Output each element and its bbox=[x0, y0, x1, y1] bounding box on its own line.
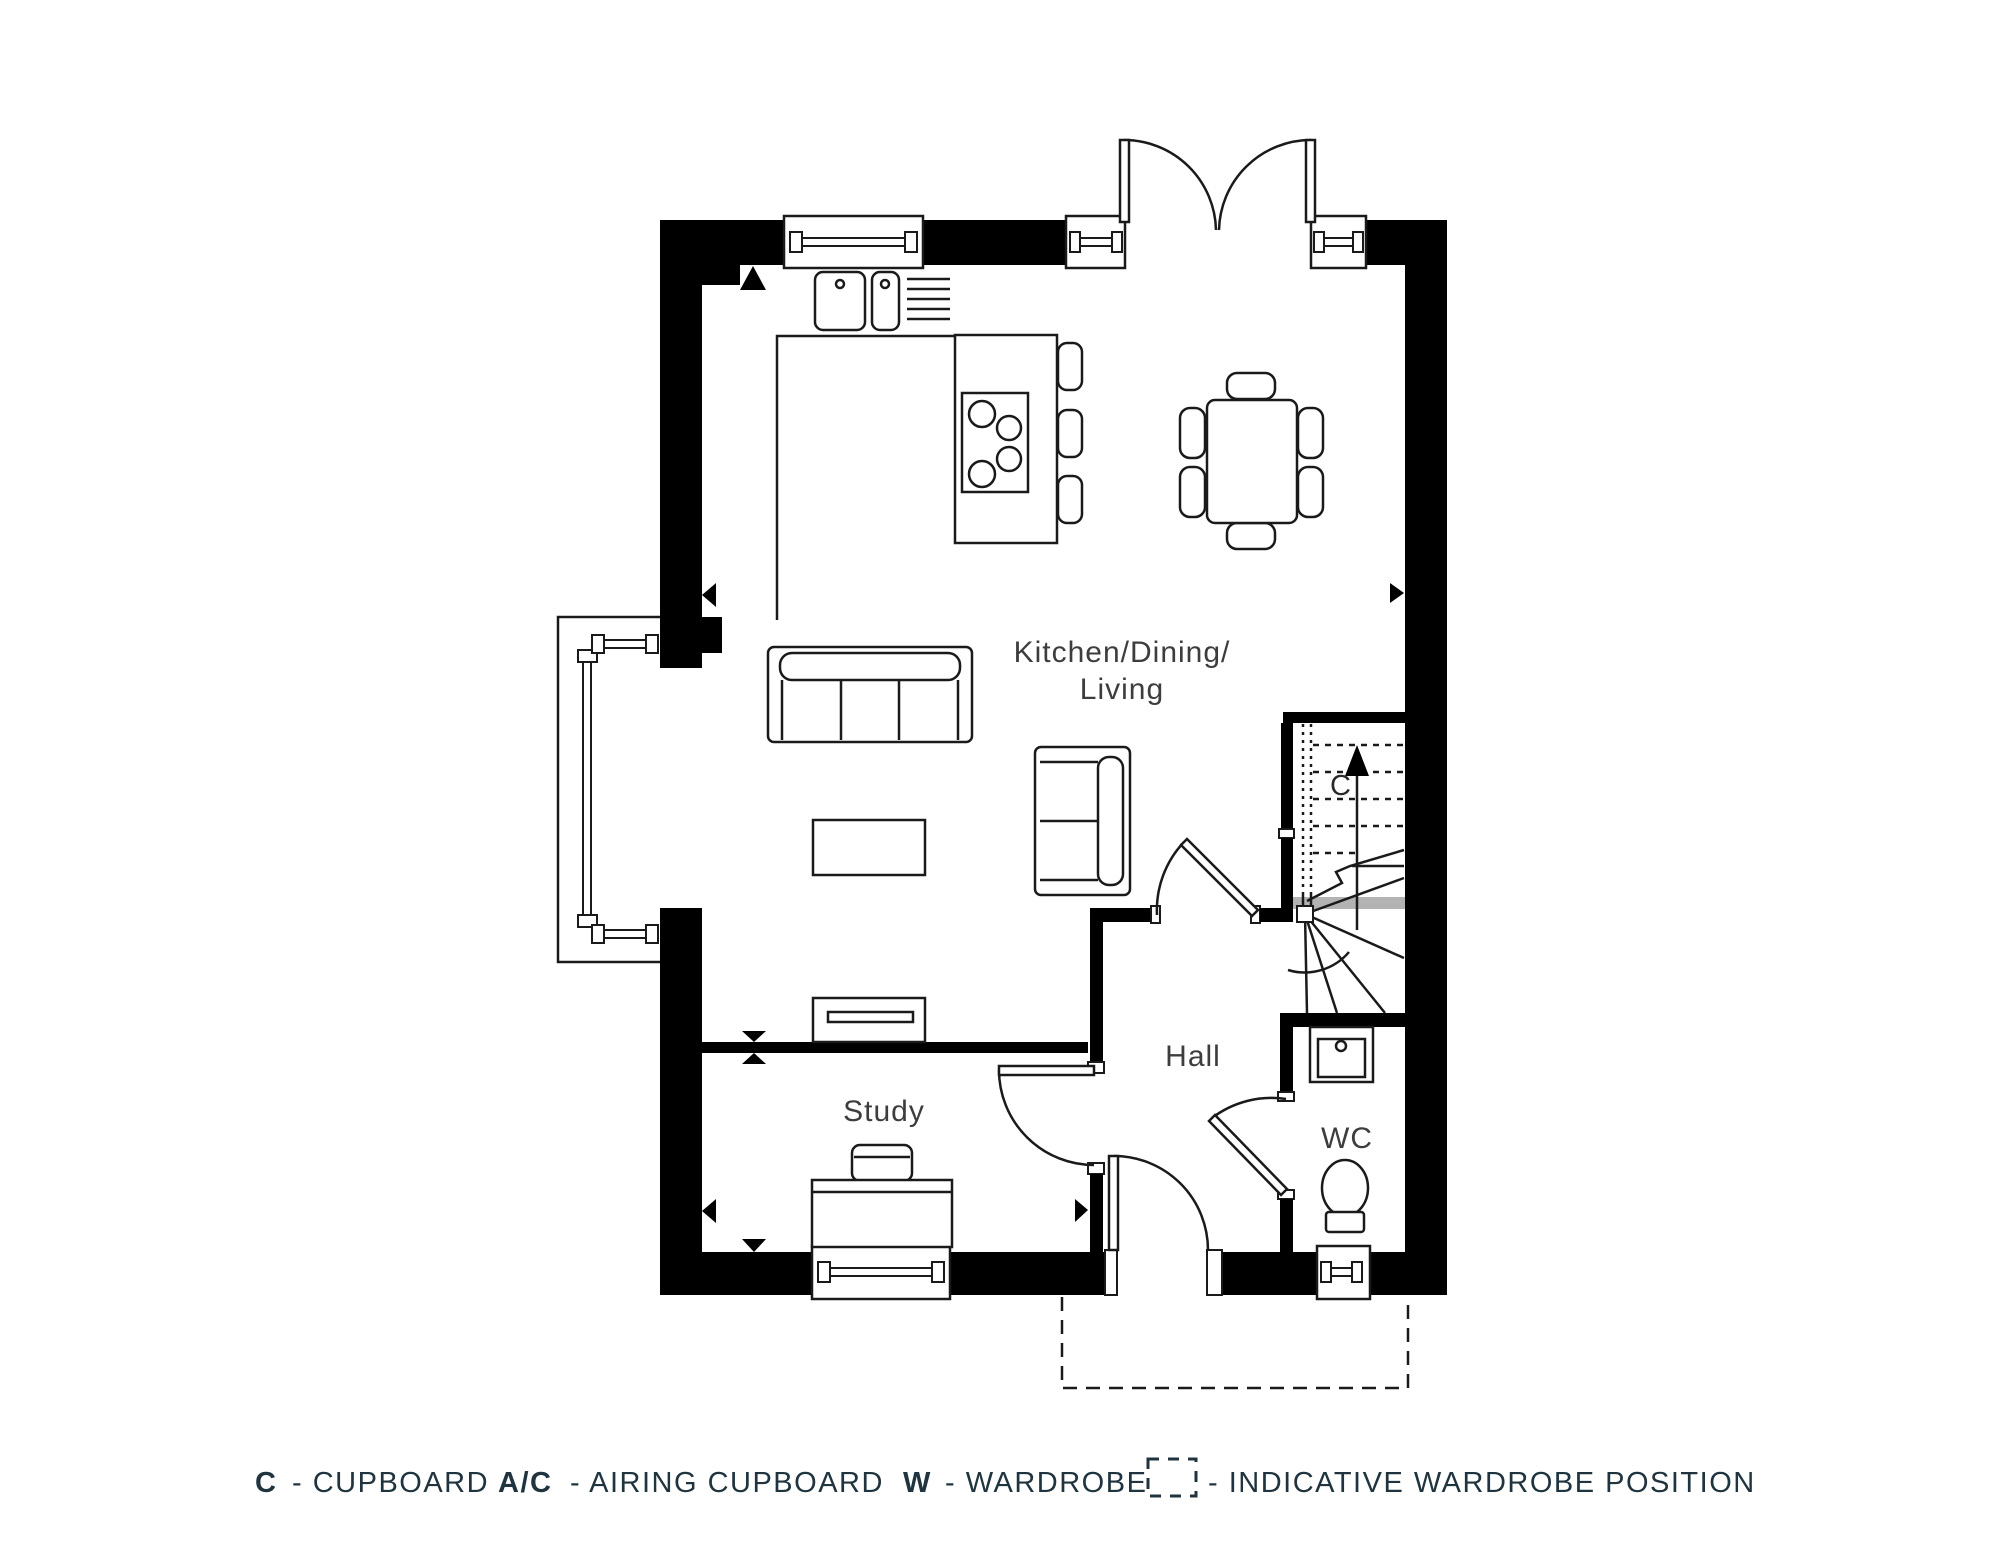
wc-window bbox=[1317, 1246, 1370, 1299]
staircase: C bbox=[1288, 724, 1405, 1013]
marker-triangle-down bbox=[742, 1031, 766, 1042]
study-door bbox=[999, 1066, 1094, 1165]
kitchen bbox=[777, 272, 1082, 620]
sofa bbox=[768, 647, 972, 742]
newel-post bbox=[1297, 906, 1313, 922]
french-door-leaf-left bbox=[1120, 140, 1129, 222]
living-hall-door bbox=[1157, 839, 1258, 916]
legend-symbol-wardrobe: W bbox=[903, 1467, 932, 1499]
kitchen-counter bbox=[777, 336, 955, 620]
kitchen-sink bbox=[815, 272, 950, 330]
living-furniture bbox=[768, 647, 1130, 1042]
bar-stools bbox=[1058, 343, 1082, 523]
french-door-leaf-right bbox=[1306, 140, 1315, 222]
legend-label-cupboard: - CUPBOARD bbox=[292, 1467, 489, 1499]
porch-dashed-outline bbox=[1062, 1297, 1408, 1388]
study-window bbox=[812, 1246, 950, 1299]
door-jamb bbox=[1279, 829, 1294, 838]
dining-chair bbox=[1227, 373, 1275, 399]
sidelight-window-right bbox=[1311, 216, 1366, 268]
wc-basin bbox=[1310, 1027, 1373, 1082]
marker-triangle-up bbox=[742, 1053, 766, 1064]
desk-chair bbox=[852, 1145, 912, 1181]
toilet bbox=[1322, 1160, 1368, 1232]
legend-dashed-box-icon bbox=[1148, 1459, 1196, 1496]
hob bbox=[962, 393, 1028, 492]
front-door bbox=[1105, 1156, 1222, 1295]
marker-triangle-left bbox=[702, 583, 716, 607]
stair-break-line bbox=[1307, 850, 1404, 901]
room-label-kitchen-line1: Kitchen/Dining/ bbox=[1014, 636, 1231, 669]
dining-chair bbox=[1298, 467, 1323, 517]
desk bbox=[812, 1180, 952, 1247]
room-label-wc: WC bbox=[1321, 1122, 1373, 1155]
doors bbox=[999, 839, 1287, 1295]
coffee-table bbox=[813, 820, 925, 875]
bay-window-glass bbox=[583, 662, 591, 915]
front-door-leaf bbox=[1109, 1156, 1118, 1250]
room-label-kitchen-line2: Living bbox=[1080, 673, 1164, 706]
legend-symbol-airing-cupboard: A/C bbox=[498, 1467, 552, 1499]
drainer-lines bbox=[907, 279, 950, 319]
french-doors bbox=[1120, 140, 1315, 230]
study-furniture bbox=[812, 1145, 952, 1247]
marker-triangle-left bbox=[702, 1199, 716, 1223]
marker-triangle-right bbox=[1075, 1199, 1088, 1222]
legend-symbol-cupboard: C bbox=[255, 1467, 277, 1499]
sidelight-window-left bbox=[1066, 216, 1125, 268]
legend-label-wardrobe: - WARDROBE bbox=[945, 1467, 1147, 1499]
legend-label-indicative-wardrobe: - INDICATIVE WARDROBE POSITION bbox=[1208, 1467, 1756, 1499]
marker-triangle-down bbox=[742, 1239, 766, 1252]
legend: C - CUPBOARD A/C - AIRING CUPBOARD W - W… bbox=[255, 1459, 1756, 1499]
kitchen-window bbox=[784, 216, 923, 268]
tv-unit bbox=[813, 998, 925, 1042]
wc-door bbox=[1209, 1098, 1287, 1195]
floorplan-page: C bbox=[0, 0, 2000, 1561]
dining-chair bbox=[1180, 408, 1205, 458]
legend-label-airing-cupboard: - AIRING CUPBOARD bbox=[570, 1467, 884, 1499]
room-label-hall: Hall bbox=[1165, 1040, 1221, 1073]
dining-chair bbox=[1227, 523, 1275, 549]
stairs-cupboard-label: C bbox=[1330, 770, 1351, 802]
dining-chair bbox=[1180, 467, 1205, 517]
marker-triangle-up bbox=[740, 266, 766, 290]
bay-window bbox=[558, 617, 660, 962]
dining-set bbox=[1180, 373, 1323, 549]
floorplan-drawing: C bbox=[0, 0, 2000, 1561]
room-label-study: Study bbox=[843, 1095, 925, 1128]
marker-triangle-right bbox=[1390, 583, 1404, 603]
loveseat bbox=[1035, 747, 1130, 895]
dining-chair bbox=[1298, 408, 1323, 458]
dining-table bbox=[1207, 400, 1297, 523]
